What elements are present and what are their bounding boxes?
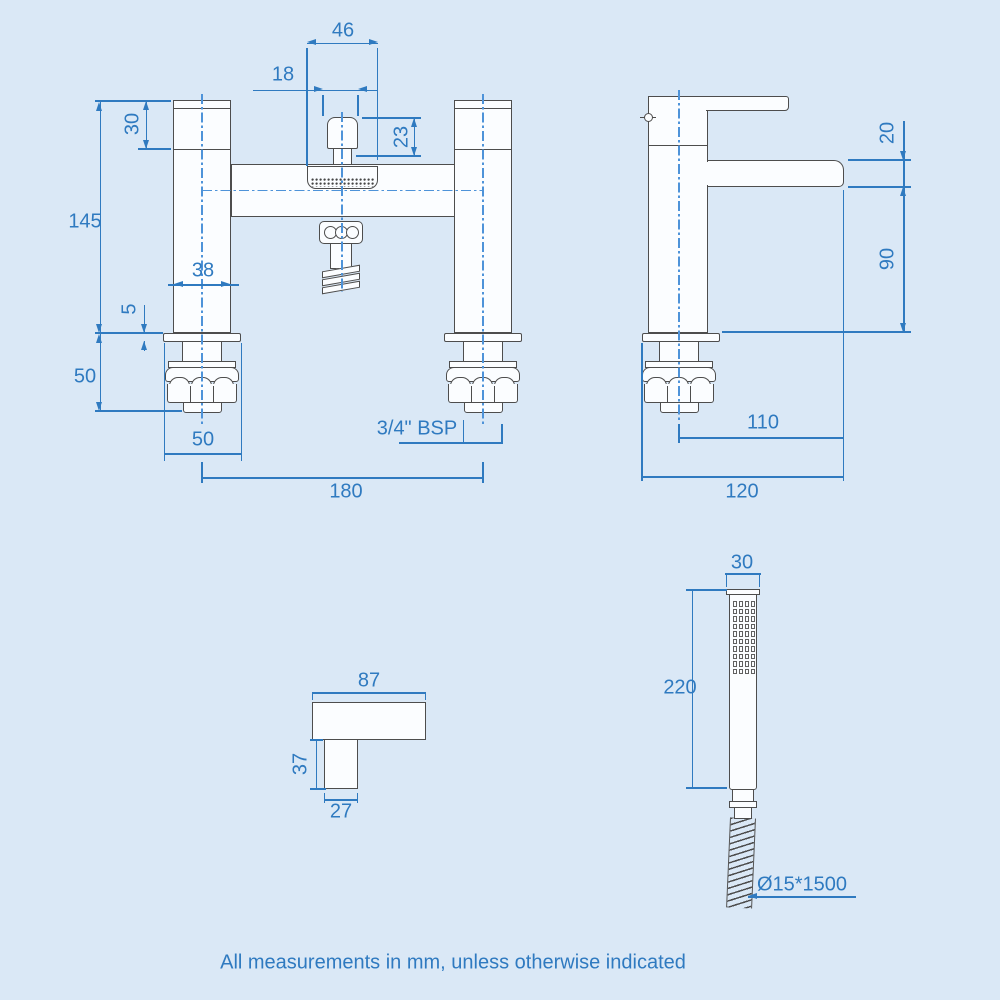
- dim-line: [692, 590, 693, 788]
- leader-line: [748, 896, 856, 897]
- spray-face: [733, 601, 755, 674]
- handset-view: 30 220 Ø15*1500: [0, 0, 1000, 1000]
- ext-line: [686, 589, 727, 590]
- technical-drawing-page: 46 18 23 30 145 50 5: [0, 0, 1000, 1000]
- dim-30-handset: 30: [731, 552, 753, 575]
- ext-line: [759, 574, 760, 587]
- arrow: [748, 893, 757, 899]
- dim-line: [725, 573, 761, 574]
- hose-size-label: Ø15*1500: [757, 874, 847, 897]
- measurement-note: All measurements in mm, unless otherwise…: [220, 952, 686, 975]
- ext-line: [686, 787, 727, 788]
- ext-line: [726, 574, 727, 587]
